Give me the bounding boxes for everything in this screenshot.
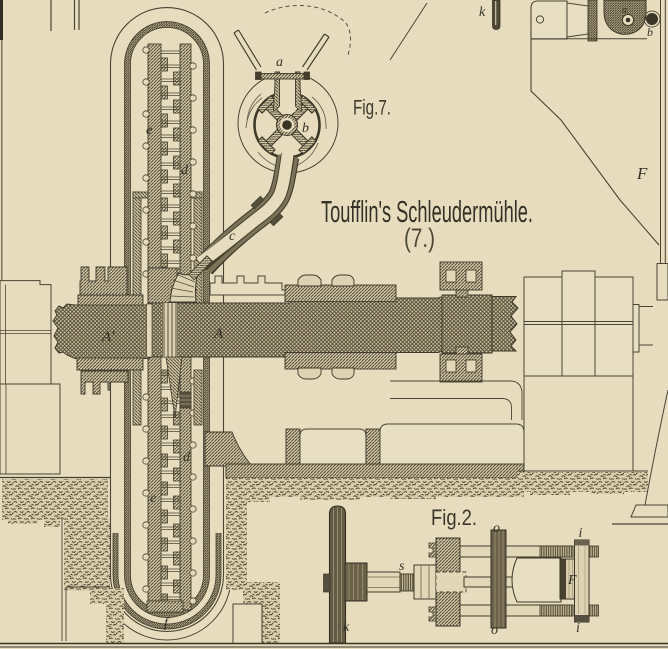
svg-text:k: k [479, 5, 486, 20]
svg-text:a: a [622, 5, 627, 16]
svg-text:a: a [276, 55, 283, 70]
svg-text:d: d [183, 450, 191, 465]
svg-text:i: i [579, 526, 583, 541]
svg-text:A': A' [101, 329, 115, 345]
svg-text:e: e [150, 491, 156, 506]
svg-text:Fig.2.: Fig.2. [431, 505, 477, 530]
svg-text:o: o [491, 623, 498, 638]
svg-text:(7.): (7.) [404, 223, 435, 253]
svg-text:Fig.7.: Fig.7. [353, 97, 391, 120]
svg-text:c: c [229, 229, 236, 244]
svg-text:i: i [576, 621, 580, 636]
svg-text:s: s [399, 559, 405, 574]
svg-text:A: A [213, 326, 224, 342]
svg-text:k: k [343, 620, 350, 635]
svg-text:F: F [636, 164, 648, 183]
svg-text:F: F [567, 573, 577, 588]
svg-text:o: o [493, 521, 500, 536]
svg-text:b: b [302, 121, 309, 136]
svg-text:b: b [647, 25, 653, 39]
svg-text:e: e [146, 123, 152, 138]
svg-text:d: d [181, 163, 189, 178]
